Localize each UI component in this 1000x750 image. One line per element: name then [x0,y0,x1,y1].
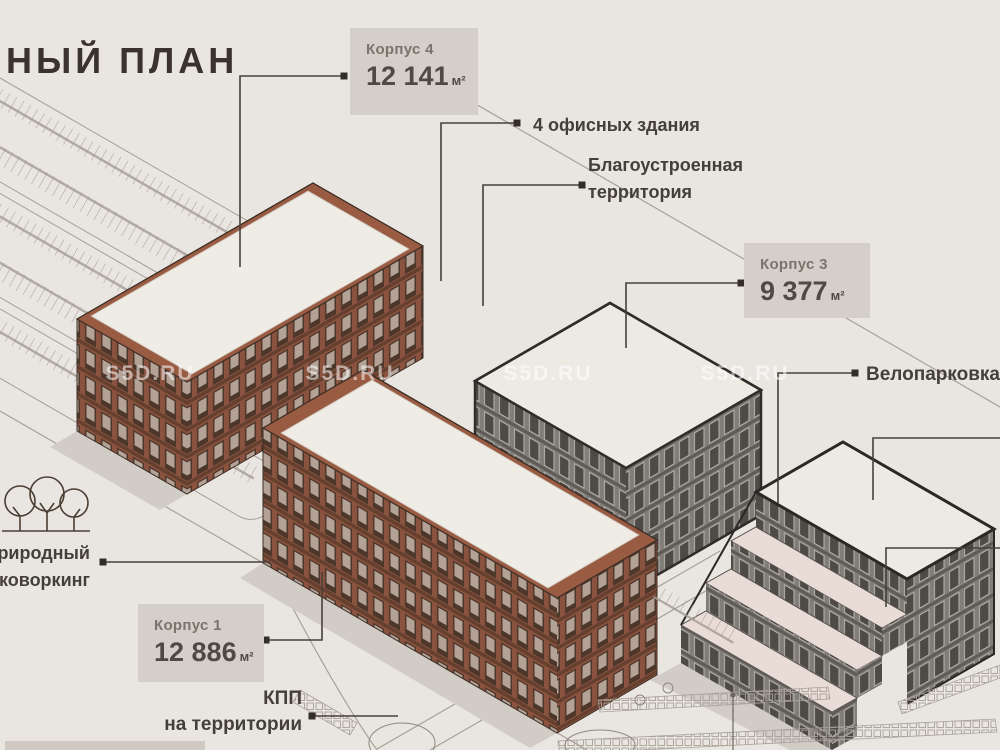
korpus4-label-box: Корпус 4 12 141м² [350,28,478,115]
landscaped-callout: Благоустроенная территория [588,152,743,206]
watermark-text: S5D.RU [700,362,789,385]
page-title: НЫЙ ПЛАН [6,40,238,82]
checkpoint-callout: КПП на территории [152,686,302,737]
checkpoint-line1: КПП [152,686,302,712]
nature-coworking-line1: риродный [0,540,90,567]
korpus3-unit: м² [831,288,845,303]
korpus4-area: 12 141 [366,61,449,91]
korpus4-unit: м² [452,73,466,88]
watermark-text: S5D.RU [305,362,394,385]
nature-coworking-callout: риродный коворкинг [0,540,90,594]
korpus1-name: Корпус 1 [154,617,250,634]
watermark-text: S5D.RU [105,362,194,385]
korpus3-label-box: Корпус 3 9 377м² [744,243,870,318]
korpus4-name: Корпус 4 [366,41,464,58]
trees-icon [2,477,90,531]
nature-coworking-line2: коворкинг [0,567,90,594]
site-plan: S5D.RU S5D.RU S5D.RU S5D.RU НЫЙ ПЛАН Кор… [0,0,1000,750]
landscaped-line1: Благоустроенная [588,152,743,179]
landscaped-line2: территория [588,179,743,206]
korpus3-name: Корпус 3 [760,256,856,273]
korpus1-unit: м² [240,649,254,664]
offices-callout: 4 офисных здания [533,112,700,139]
korpus3-area: 9 377 [760,276,828,306]
korpus1-label-box: Корпус 1 12 886м² [138,604,264,682]
bike-parking-callout: Велопарковка [866,361,1000,390]
korpus1-area: 12 886 [154,637,237,667]
checkpoint-line2: на территории [152,712,302,738]
cut-label-box [5,741,205,750]
watermark-text: S5D.RU [503,362,592,385]
